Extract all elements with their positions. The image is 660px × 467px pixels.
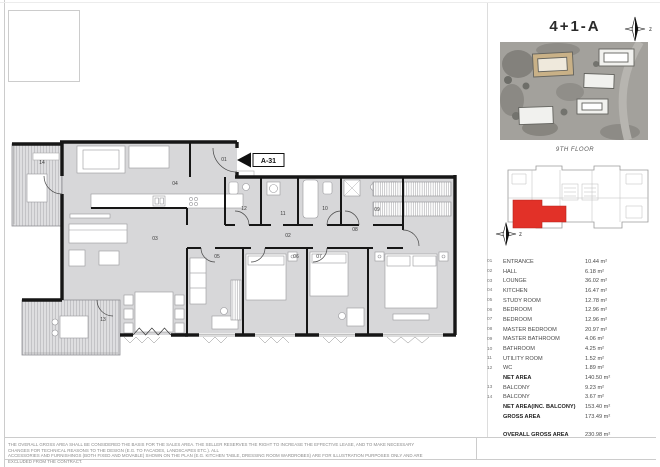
table-cell-val: 12.96 m²	[585, 317, 653, 323]
table-cell-no: 03	[487, 279, 503, 284]
room-label-12: 12	[241, 206, 247, 212]
table-row: OVERALL GROSS AREA230.98 m²	[487, 430, 653, 440]
table-cell-val: 16.47 m²	[585, 288, 653, 294]
table-row: 04KITCHEN16.47 m²	[487, 286, 653, 296]
area-table: 01ENTRANCE10.44 m²02HALL6.18 m²03LOUNGE3…	[487, 257, 653, 439]
table-cell-no: 09	[487, 337, 503, 342]
section-marker: A-31	[237, 153, 284, 168]
table-cell-no: 01	[487, 259, 503, 264]
table-cell-no: 06	[487, 308, 503, 313]
table-cell-val: 12.78 m²	[585, 298, 653, 304]
table-cell-nm: ENTRANCE	[503, 259, 585, 265]
table-cell-no: 04	[487, 288, 503, 293]
table-cell-val: 1.89 m²	[585, 365, 653, 371]
table-cell-nm: MASTER BATHROOM	[503, 336, 585, 342]
table-cell-no: 14	[487, 395, 503, 400]
table-row: 13BALCONY9.23 m²	[487, 383, 653, 393]
table-row: 05STUDY ROOM12.78 m²	[487, 296, 653, 306]
table-cell-val: 12.96 m²	[585, 307, 653, 313]
table-cell-no: 13	[487, 385, 503, 390]
table-row: NET AREA140.50 m²	[487, 373, 653, 383]
table-row: 14BALCONY3.67 m²	[487, 393, 653, 403]
table-cell-nm: NET AREA	[503, 375, 585, 381]
table-cell-val: 4.06 m²	[585, 336, 653, 342]
room-label-03: 03	[152, 236, 158, 242]
table-cell-nm: HALL	[503, 269, 585, 275]
table-cell-val: 140.50 m²	[585, 375, 653, 381]
table-cell-nm: BEDROOM	[503, 317, 585, 323]
top-margin-line	[0, 2, 660, 3]
table-cell-nm: LOUNGE	[503, 278, 585, 284]
room-label-13: 13	[100, 317, 106, 323]
room-label-09: 09	[374, 207, 380, 213]
room-label-04: 04	[172, 181, 178, 187]
room-label-14: 14	[39, 160, 45, 166]
table-row: 12WC1.89 m²	[487, 364, 653, 374]
table-row: 10BATHROOM4.25 m²	[487, 344, 653, 354]
table-cell-val: 153.40 m²	[585, 404, 653, 410]
table-cell-nm: STUDY ROOM	[503, 298, 585, 304]
room-label-10: 10	[322, 206, 328, 212]
room-label-08: 08	[352, 227, 358, 233]
table-cell-val: 10.44 m²	[585, 259, 653, 265]
table-cell-nm: OVERALL GROSS AREA	[503, 432, 585, 438]
table-row: 11UTILITY ROOM1.52 m²	[487, 354, 653, 364]
footer-divider-line	[476, 437, 477, 459]
keyplan-compass-icon: z	[492, 222, 526, 255]
table-cell-nm: BEDROOM	[503, 307, 585, 313]
table-cell-no: 05	[487, 298, 503, 303]
section-marker-label: A-31	[261, 158, 276, 165]
table-cell-val: 20.97 m²	[585, 327, 653, 333]
section-arrow-icon	[237, 153, 251, 168]
compass-label: z	[649, 27, 652, 33]
table-cell-nm: NET AREA(INC. BALCONY)	[503, 404, 585, 410]
table-cell-val: 36.02 m²	[585, 278, 653, 284]
room-label-07: 07	[316, 254, 322, 260]
table-cell-val: 173.49 m²	[585, 414, 653, 420]
table-cell-nm: UTILITY ROOM	[503, 356, 585, 362]
table-cell-nm: BALCONY	[503, 385, 585, 391]
table-row: 06BEDROOM12.96 m²	[487, 305, 653, 315]
disclaimer-text: THE OVERALL GROSS AREA SHALL BE CONSIDER…	[8, 442, 432, 464]
compass-label: z	[519, 232, 522, 238]
table-cell-nm: WC	[503, 365, 585, 371]
disclaimer-line-2: ACCESSORIES AND FURNISHINGS (BOTH FIXED …	[8, 453, 432, 464]
floor-label: 9TH FLOOR	[500, 147, 650, 153]
table-cell-val: 6.18 m²	[585, 269, 653, 275]
table-cell-val: 4.25 m²	[585, 346, 653, 352]
table-row: 02HALL6.18 m²	[487, 267, 653, 277]
table-cell-no: 12	[487, 366, 503, 371]
table-cell-nm: KITCHEN	[503, 288, 585, 294]
room-label-05: 05	[214, 254, 220, 260]
logo-placeholder-box	[8, 10, 80, 82]
table-cell-val: 230.98 m²	[585, 432, 653, 438]
table-row: 09MASTER BATHROOM4.06 m²	[487, 335, 653, 345]
table-cell-val: 9.23 m²	[585, 385, 653, 391]
table-cell-val: 1.52 m²	[585, 356, 653, 362]
table-cell-nm: BATHROOM	[503, 346, 585, 352]
room-label-06: 06	[293, 254, 299, 260]
table-row: GROSS AREA173.49 m²	[487, 412, 653, 422]
table-cell-no: 08	[487, 327, 503, 332]
table-cell-no: 02	[487, 269, 503, 274]
table-row: NET AREA(INC. BALCONY)153.40 m²	[487, 402, 653, 412]
table-row: 03LOUNGE36.02 m²	[487, 276, 653, 286]
room-label-02: 02	[285, 233, 291, 239]
table-row: 01ENTRANCE10.44 m²	[487, 257, 653, 267]
floor-plan-drawing: 14 04 01 12 11 10 09 02 03 05 06 07 08 1…	[3, 130, 473, 365]
table-cell-no: 11	[487, 356, 503, 361]
table-cell-nm: MASTER BEDROOM	[503, 327, 585, 333]
table-row: 07BEDROOM12.96 m²	[487, 315, 653, 325]
plan-sheet: 14 04 01 12 11 10 09 02 03 05 06 07 08 1…	[0, 0, 660, 467]
table-cell-nm: BALCONY	[503, 394, 585, 400]
disclaimer-line-1: THE OVERALL GROSS AREA SHALL BE CONSIDER…	[8, 442, 432, 453]
table-cell-no: 10	[487, 347, 503, 352]
table-cell-no: 07	[487, 317, 503, 322]
site-aerial-photo	[500, 42, 648, 140]
table-row: 08MASTER BEDROOM20.97 m²	[487, 325, 653, 335]
table-cell-nm: GROSS AREA	[503, 414, 585, 420]
room-label-11: 11	[280, 211, 285, 217]
table-cell-val: 3.67 m²	[585, 394, 653, 400]
room-label-01: 01	[221, 157, 227, 163]
